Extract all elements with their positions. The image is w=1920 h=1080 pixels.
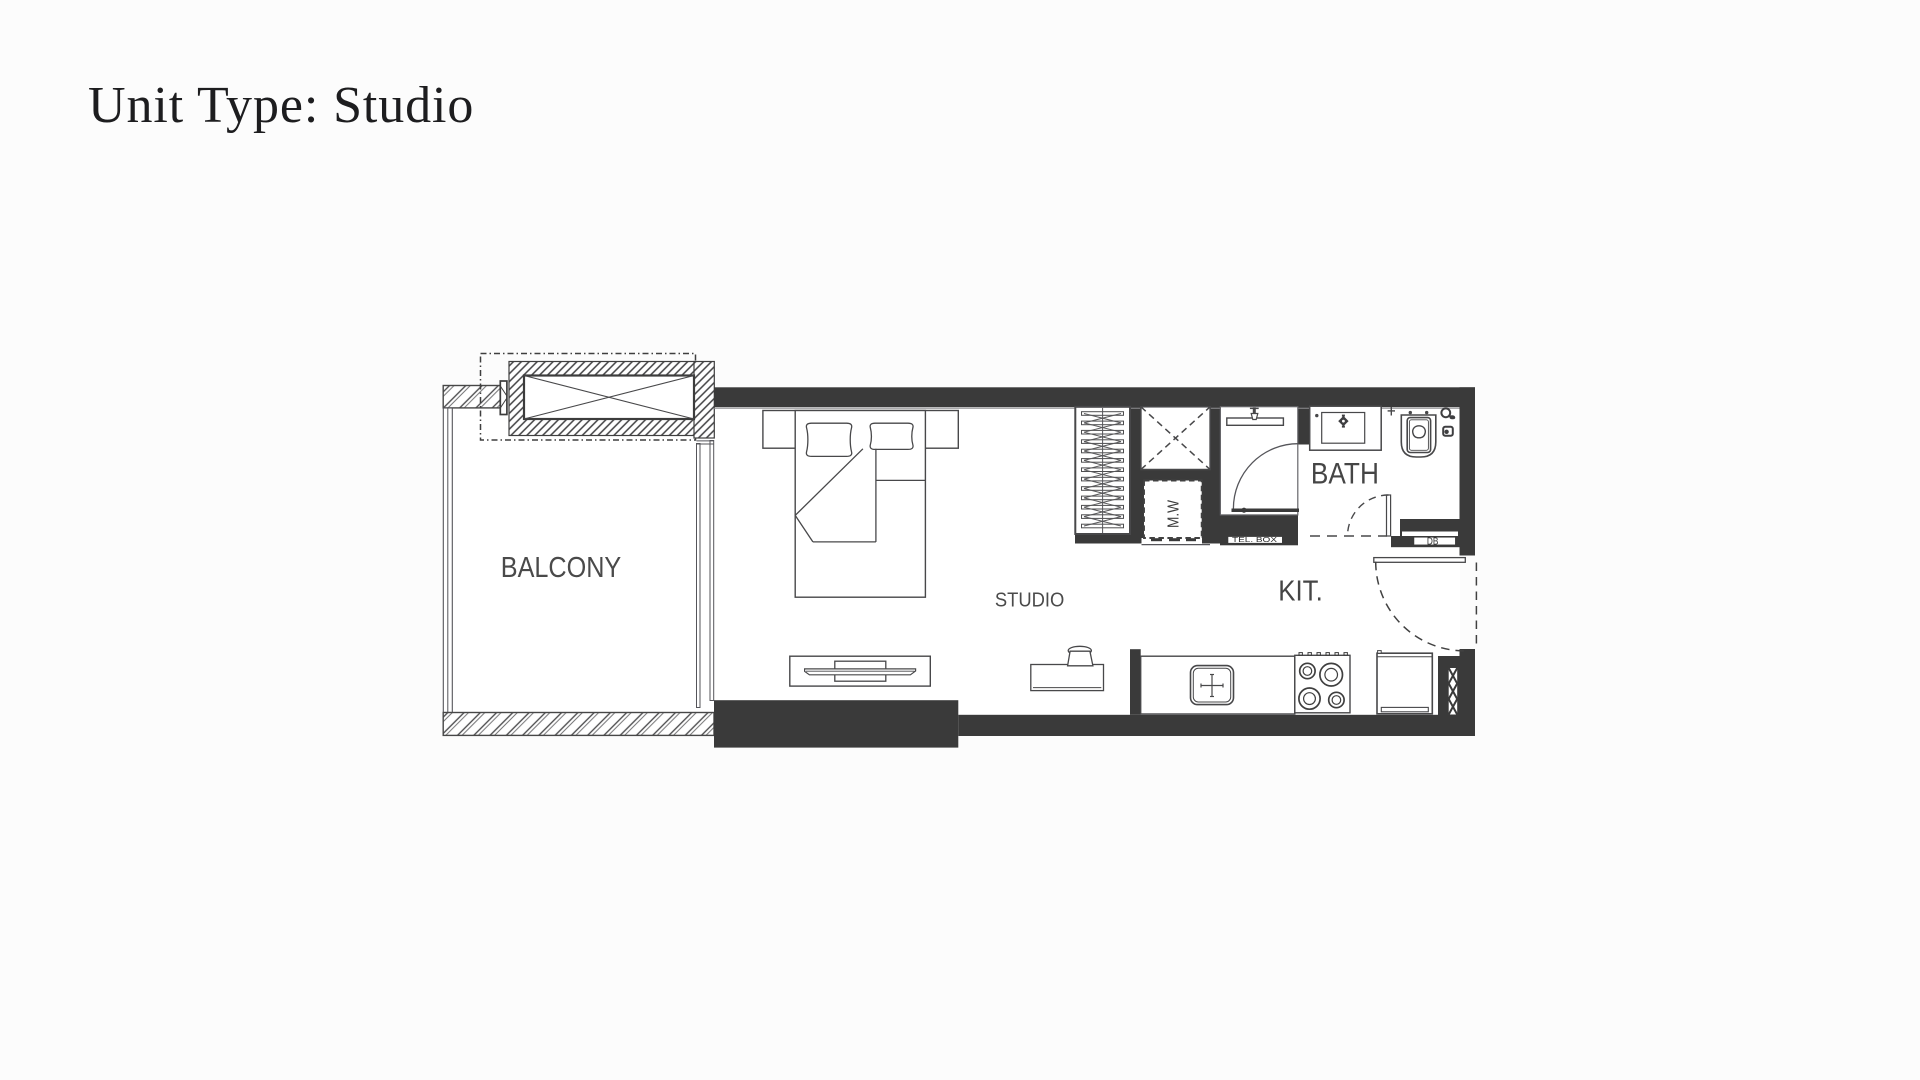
svg-text:BALCONY: BALCONY <box>501 552 622 584</box>
svg-text:KIT.: KIT. <box>1278 576 1323 608</box>
svg-text:DB: DB <box>1427 536 1439 548</box>
svg-text:Unit Type: Studio: Unit Type: Studio <box>88 77 474 134</box>
svg-text:STUDIO: STUDIO <box>995 589 1065 612</box>
svg-text:M.W: M.W <box>1166 500 1183 528</box>
svg-text:BATH: BATH <box>1311 458 1379 491</box>
svg-text:TEL. BOX: TEL. BOX <box>1232 535 1277 544</box>
